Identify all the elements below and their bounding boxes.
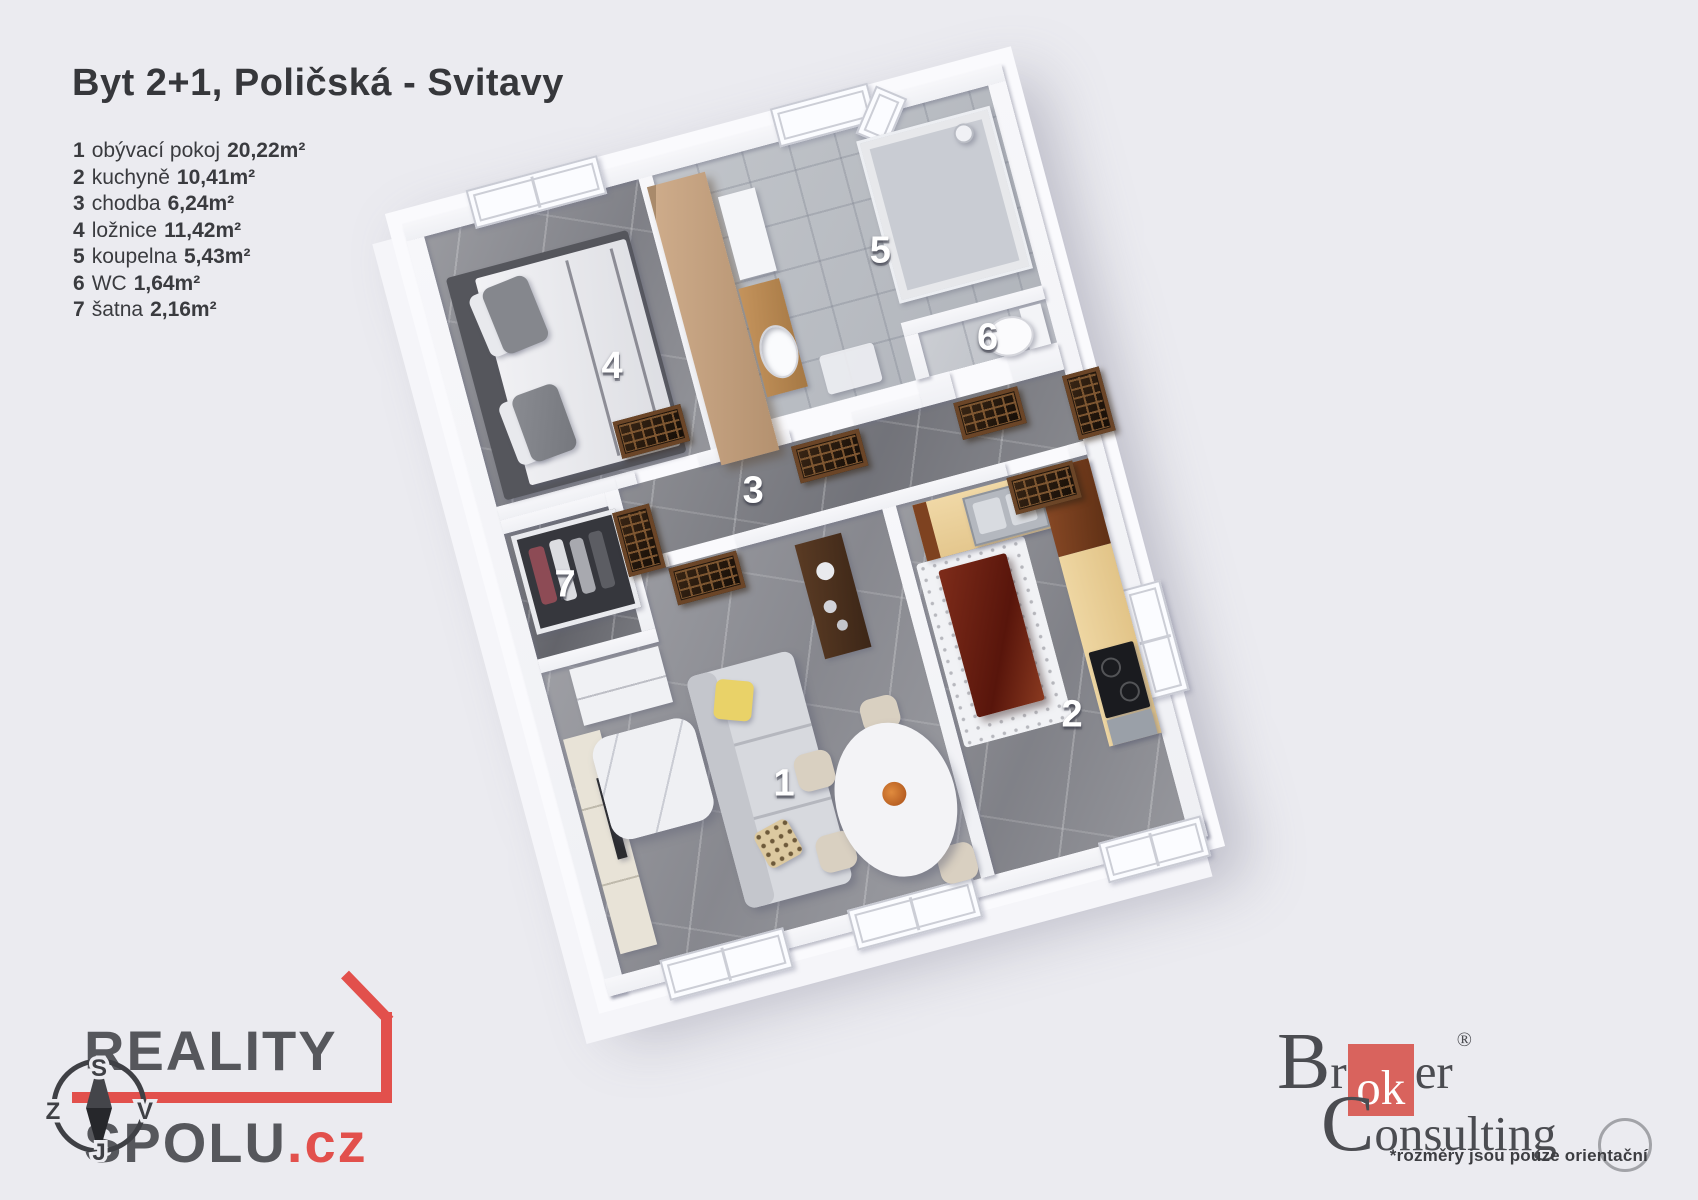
window-mullion [530,176,541,208]
legend-name: chodba [92,192,161,215]
legend-name: šatna [92,298,143,321]
logo-tld: .cz [287,1111,368,1174]
bowl [836,618,849,631]
vase [814,560,836,582]
room-legend: 1obývací pokoj20,22m² 2kuchyně10,41m² 3c… [73,138,305,324]
compass-east-label: V [137,1098,153,1125]
page-title: Byt 2+1, Poličská - Svitavy [72,62,564,105]
compass-south-label: J [92,1139,105,1162]
compass-rose: S Z V J [40,1044,158,1162]
legend-item-kitchen: 2kuchyně10,41m² [73,165,305,192]
bowl [822,599,838,615]
room-label-bedroom: 4 [602,345,623,388]
room-label-kitchen: 2 [1061,694,1082,737]
legend-name: koupelna [92,245,177,268]
legend-num: 1 [73,139,85,162]
compass-west-label: Z [46,1098,61,1125]
legend-item-closet: 7šatna2,16m² [73,297,305,324]
legend-num: 6 [73,272,85,295]
legend-num: 3 [73,192,85,215]
legend-name: kuchyně [92,166,170,189]
window-mullion [720,947,732,981]
dimensions-disclaimer: *rozměry jsou pouze orientační [1390,1146,1648,1166]
legend-area: 6,24m² [168,192,235,215]
floor-plan-3d: 1 2 3 4 5 6 7 [402,63,1208,996]
legend-name: WC [92,272,127,295]
legend-area: 11,42m² [164,219,241,242]
legend-item-bathroom: 5koupelna5,43m² [73,244,305,271]
room-label-closet: 7 [554,563,575,606]
legend-item-living: 1obývací pokoj20,22m² [73,138,305,165]
room-label-bathroom: 5 [870,229,891,272]
logo-letter-c: C [1321,1080,1374,1168]
room-label-wc: 6 [977,317,998,360]
window-mullion [909,897,921,931]
legend-item-wc: 6WC1,64m² [73,271,305,298]
legend-item-bedroom: 4ložnice11,42m² [73,218,305,245]
registered-icon: ® [1457,1029,1472,1051]
room-label-living: 1 [773,763,794,806]
legend-num: 5 [73,245,85,268]
window-mullion [1139,634,1171,645]
burner [1118,679,1142,703]
logo-roof-vertical [381,1012,392,1103]
burner [1099,655,1123,679]
legend-num: 7 [73,298,85,321]
sink-bowl [972,497,1007,535]
legend-item-hall: 3chodba6,24m² [73,191,305,218]
compass-north-label: S [91,1055,107,1082]
legend-area: 10,41m² [177,166,255,189]
legend-num: 4 [73,219,85,242]
legend-name: ložnice [92,219,157,242]
legend-area: 20,22m² [227,139,305,162]
legend-name: obývací pokoj [92,139,220,162]
legend-area: 1,64m² [134,272,201,295]
room-label-hall: 3 [743,470,764,513]
legend-area: 5,43m² [184,245,251,268]
window-mullion [1148,833,1160,867]
legend-area: 2,16m² [150,298,217,321]
legend-num: 2 [73,166,85,189]
yellow-pillow [713,679,754,722]
